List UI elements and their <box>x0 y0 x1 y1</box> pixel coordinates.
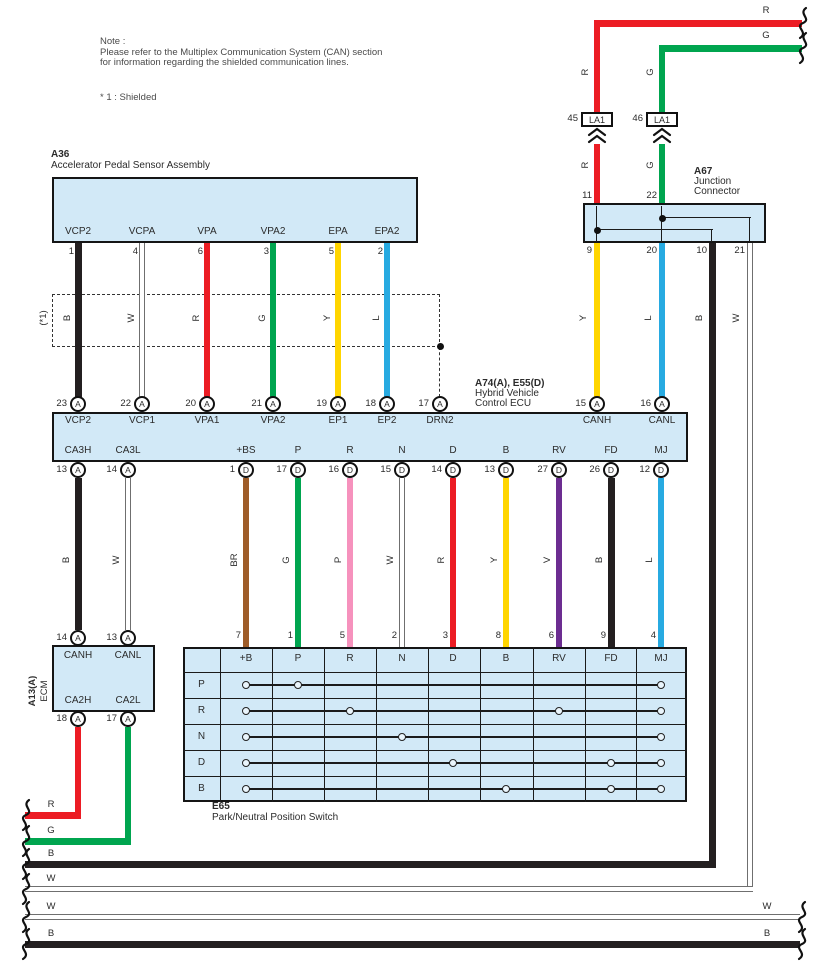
wire-color-label: V <box>542 540 554 580</box>
wire-ecu-RV <box>556 478 563 647</box>
ecm-terminal-CANL: CANL <box>108 650 148 662</box>
wire-bottom-harness-0 <box>25 812 81 819</box>
a36-pin-number: 3 <box>245 246 269 258</box>
e65-row-label: D <box>182 757 222 769</box>
ecu-terminal-CA3L: CA3L <box>105 445 151 457</box>
pin-connector-circle: A <box>265 396 281 412</box>
e65-contact-terminal <box>242 707 250 715</box>
ecm-terminal-CA2H: CA2H <box>58 695 98 707</box>
ecu-top-pin-number: 16 <box>625 398 651 410</box>
ecu-terminal-R: R <box>327 445 373 457</box>
pin-connector-circle: A <box>70 711 86 727</box>
wire-ecm-CA2L <box>125 727 132 844</box>
e65-column-header: +B <box>226 653 266 665</box>
harness-break-mark <box>795 928 809 960</box>
wire-color-label: L <box>643 298 655 338</box>
junction-internal-line <box>711 229 712 242</box>
e65-contact-terminal <box>449 759 457 767</box>
wire-color-label: G <box>645 52 657 92</box>
bottom-edge-wire-label: W <box>31 873 71 885</box>
a36-terminal-VCP2: VCP2 <box>58 226 98 238</box>
wire-bottom-harness-4 <box>25 914 800 920</box>
wire-color-label: G <box>281 540 293 580</box>
wire-color-label: B <box>61 540 73 580</box>
e65-column-header: D <box>433 653 473 665</box>
junction-internal-line <box>183 776 687 777</box>
ecu-bottom-pin-number: 13 <box>41 464 67 476</box>
ecu-terminal-CANL: CANL <box>639 415 685 427</box>
wire-top-edge-g <box>659 45 802 52</box>
ecu-terminal-D: D <box>430 445 476 457</box>
e65-contact-terminal <box>242 681 250 689</box>
a67-name-line2: Connector <box>694 186 740 198</box>
wire-ecu-P <box>295 478 302 647</box>
ecu-bottom-pin-number: 17 <box>261 464 287 476</box>
ecu-bottom-pin-number: 27 <box>522 464 548 476</box>
wire-a36-EPA <box>335 243 342 397</box>
pin-connector-circle: D <box>445 462 461 478</box>
e65-row-label: B <box>182 783 222 795</box>
ecu-terminal-EP1: EP1 <box>315 415 361 427</box>
pin-connector-circle: A <box>589 396 605 412</box>
bottom-edge-wire-label: W <box>31 901 71 913</box>
junction-internal-line <box>183 724 687 725</box>
note-title: Note : <box>100 37 382 48</box>
pin-connector-circle: A <box>379 396 395 412</box>
e65-name: Park/Neutral Position Switch <box>212 812 338 824</box>
ecu-terminal-CANH: CANH <box>574 415 620 427</box>
harness-break-mark <box>19 928 33 960</box>
top-edge-wire-label-r: R <box>751 5 781 17</box>
wire-ecu-CA3H <box>75 478 82 630</box>
top-edge-wire-label-g: G <box>751 30 781 42</box>
a36-terminal-VPA: VPA <box>187 226 227 238</box>
wire-ecu-D <box>450 478 457 647</box>
pin-connector-circle: D <box>238 462 254 478</box>
bottom-right-edge-wire-label: W <box>747 901 787 913</box>
la1-connector-left: LA1 <box>581 112 613 127</box>
e65-row-label: R <box>182 705 222 717</box>
wire-a67-top-22 <box>659 48 666 113</box>
e65-contact-terminal <box>607 785 615 793</box>
wire-color-label: G <box>645 145 657 185</box>
a36-box <box>52 177 418 243</box>
e65-contact-terminal <box>657 785 665 793</box>
wire-ecu-R <box>347 478 354 647</box>
ecm-code: A13(A) <box>27 669 39 713</box>
in-harness-chevron-icon <box>588 128 606 143</box>
shield-tag: (*1) <box>38 298 50 338</box>
note-line2: for information regarding the shielded c… <box>100 58 382 69</box>
wire-ecu-MJ <box>658 478 665 647</box>
a36-pin-number: 5 <box>310 246 334 258</box>
e65-pin-number: 7 <box>219 630 241 642</box>
ecu-terminal-DRN2: DRN2 <box>417 415 463 427</box>
junction-internal-line <box>183 750 687 751</box>
wire-a36-VCP2 <box>75 243 82 397</box>
junction-internal-line <box>596 229 713 230</box>
e65-pin-number: 6 <box>532 630 554 642</box>
e65-pin-number: 4 <box>634 630 656 642</box>
bottom-edge-wire-label: R <box>31 799 71 811</box>
wire-color-label: Y <box>489 540 501 580</box>
e65-contact-terminal <box>555 707 563 715</box>
e65-row-label: P <box>182 679 222 691</box>
ecu-terminal-CA3H: CA3H <box>55 445 101 457</box>
wire-color-label: BR <box>229 540 241 580</box>
pin-connector-circle: A <box>120 711 136 727</box>
e65-contact-line <box>246 736 661 737</box>
pin-connector-circle: A <box>120 630 136 646</box>
wire-ecm-CA2H <box>75 727 82 818</box>
pin-connector-circle: A <box>70 462 86 478</box>
harness-break-mark <box>796 32 810 64</box>
ecu-bottom-pin-number: 13 <box>469 464 495 476</box>
ecu-top-pin-number: 23 <box>41 398 67 410</box>
junction-internal-line <box>749 217 750 242</box>
e65-contact-terminal <box>657 707 665 715</box>
a67-bottom-pin-number: 9 <box>568 245 592 257</box>
e65-column-header: RV <box>539 653 579 665</box>
a36-name: Accelerator Pedal Sensor Assembly <box>51 160 210 172</box>
ecu-terminal-VCP2: VCP2 <box>55 415 101 427</box>
wire-ecu-B <box>503 478 510 647</box>
pin-connector-circle: A <box>120 462 136 478</box>
wire-color-label: R <box>580 145 592 185</box>
e65-pin-number: 3 <box>426 630 448 642</box>
ecu-terminal-EP2: EP2 <box>364 415 410 427</box>
junction-internal-line <box>596 206 597 242</box>
ecu-top-pin-number: 17 <box>403 398 429 410</box>
pin-connector-circle: A <box>134 396 150 412</box>
ecm-top-pin-number: 13 <box>93 632 117 644</box>
junction-dot <box>594 227 601 234</box>
wire-color-label: L <box>644 540 656 580</box>
a36-terminal-VPA2: VPA2 <box>253 226 293 238</box>
wire-color-label: B <box>594 540 606 580</box>
ecm-name: ECM <box>39 676 51 706</box>
wire-bottom-harness-2 <box>25 861 715 868</box>
pin-connector-circle: A <box>70 396 86 412</box>
ecu-top-pin-number: 22 <box>105 398 131 410</box>
wire-top-edge-r <box>594 20 802 27</box>
ecu-terminal-+BS: +BS <box>223 445 269 457</box>
ecu-bottom-pin-number: 14 <box>416 464 442 476</box>
a67-bottom-pin-number: 20 <box>633 245 657 257</box>
junction-internal-line <box>661 217 751 218</box>
ecu-bottom-pin-number: 26 <box>574 464 600 476</box>
in-harness-chevron-icon <box>653 128 671 143</box>
wire-bottom-harness-3 <box>25 886 753 892</box>
e65-contact-line <box>246 788 661 789</box>
ecu-terminal-B: B <box>483 445 529 457</box>
ecu-top-pin-number: 19 <box>301 398 327 410</box>
bottom-edge-wire-label: B <box>31 928 71 940</box>
a36-terminal-EPA: EPA <box>318 226 358 238</box>
ecu-terminal-VPA2: VPA2 <box>250 415 296 427</box>
bottom-edge-wire-label: B <box>31 848 71 860</box>
wire-a67-ground <box>709 243 716 868</box>
e65-pin-number: 9 <box>584 630 606 642</box>
wire-color-label: W <box>731 298 743 338</box>
e65-pin-number: 2 <box>375 630 397 642</box>
e65-contact-terminal <box>346 707 354 715</box>
wire-a36-VCPA <box>139 243 145 397</box>
la1-right-pin: 46 <box>617 113 643 125</box>
wire-color-label: P <box>333 540 345 580</box>
e65-pin-number: 5 <box>323 630 345 642</box>
e65-column-header: MJ <box>641 653 681 665</box>
e65-contact-terminal <box>242 759 250 767</box>
pin-connector-circle: A <box>432 396 448 412</box>
a36-pin-number: 2 <box>359 246 383 258</box>
junction-dot <box>437 343 444 350</box>
ecu-terminal-RV: RV <box>536 445 582 457</box>
wire-bottom-harness-1 <box>25 838 131 845</box>
e65-contact-line <box>246 684 661 685</box>
e65-row-label: N <box>182 731 222 743</box>
shield-drain-dashed-line <box>439 347 440 397</box>
e65-contact-terminal <box>294 681 302 689</box>
ecu-bottom-pin-number: 16 <box>313 464 339 476</box>
pin-connector-circle: D <box>653 462 669 478</box>
a67-top-pin-number: 22 <box>633 190 657 202</box>
a36-pin-number: 4 <box>114 246 138 258</box>
wire-color-label: R <box>436 540 448 580</box>
ecm-bottom-pin-number: 18 <box>43 713 67 725</box>
pin-connector-circle: A <box>199 396 215 412</box>
e65-column-header: R <box>330 653 370 665</box>
wire-a67-top-22 <box>659 144 666 203</box>
ecu-top-pin-number: 18 <box>350 398 376 410</box>
wire-a67-canh <box>594 243 601 397</box>
pin-connector-circle: D <box>394 462 410 478</box>
wire-ecu-+BS <box>243 478 250 647</box>
wire-ecu-FD <box>608 478 615 647</box>
ecu-terminal-MJ: MJ <box>638 445 684 457</box>
e65-column-header: B <box>486 653 526 665</box>
ecu-top-pin-number: 15 <box>560 398 586 410</box>
ecm-top-pin-number: 14 <box>43 632 67 644</box>
junction-internal-line <box>183 672 687 673</box>
wire-color-label: R <box>580 52 592 92</box>
e65-column-header: FD <box>591 653 631 665</box>
e65-column-header: P <box>278 653 318 665</box>
wire-a36-VPA <box>204 243 211 397</box>
ecm-terminal-CANH: CANH <box>58 650 98 662</box>
a67-bottom-pin-number: 10 <box>683 245 707 257</box>
e65-contact-terminal <box>657 759 665 767</box>
ecu-terminal-VCP1: VCP1 <box>119 415 165 427</box>
pin-connector-circle: D <box>342 462 358 478</box>
note-block: Note : Please refer to the Multiplex Com… <box>100 37 382 69</box>
ecu-bottom-pin-number: 14 <box>91 464 117 476</box>
wire-color-label: W <box>385 540 397 580</box>
a36-terminal-EPA2: EPA2 <box>367 226 407 238</box>
pin-connector-circle: D <box>290 462 306 478</box>
ecu-terminal-FD: FD <box>588 445 634 457</box>
e65-contact-terminal <box>607 759 615 767</box>
la1-connector-right: LA1 <box>646 112 678 127</box>
a67-bottom-pin-number: 21 <box>721 245 745 257</box>
ecu-bottom-pin-number: 1 <box>209 464 235 476</box>
wire-color-label: B <box>62 298 74 338</box>
ecu-top-pin-number: 21 <box>236 398 262 410</box>
junction-internal-line <box>661 206 662 242</box>
wire-ecu-CA3L <box>125 478 131 630</box>
e65-pin-number: 8 <box>479 630 501 642</box>
wire-color-label: R <box>191 298 203 338</box>
wire-color-label: B <box>694 298 706 338</box>
e65-pin-number: 1 <box>271 630 293 642</box>
ecu-bottom-pin-number: 15 <box>365 464 391 476</box>
e65-contact-line <box>246 710 661 711</box>
wire-a67-w <box>747 243 753 892</box>
wire-a36-VPA2 <box>270 243 277 397</box>
a67-junction-box <box>583 203 766 243</box>
wire-a67-top-11 <box>594 144 601 203</box>
wire-a67-top-11 <box>594 20 601 113</box>
wire-a36-EPA2 <box>384 243 391 397</box>
e65-contact-terminal <box>502 785 510 793</box>
wire-ecu-N <box>399 478 405 647</box>
a36-terminal-VCPA: VCPA <box>122 226 162 238</box>
a67-top-pin-number: 11 <box>568 190 592 202</box>
ecu-terminal-N: N <box>379 445 425 457</box>
ecu-terminal-VPA1: VPA1 <box>184 415 230 427</box>
pin-connector-circle: A <box>330 396 346 412</box>
wire-color-label: W <box>126 298 138 338</box>
wire-color-label: Y <box>322 298 334 338</box>
bottom-right-edge-wire-label: B <box>747 928 787 940</box>
bottom-edge-wire-label: G <box>31 825 71 837</box>
e65-contact-terminal <box>398 733 406 741</box>
wiring-diagram-canvas: Note : Please refer to the Multiplex Com… <box>0 0 817 966</box>
a36-pin-number: 6 <box>179 246 203 258</box>
e65-contact-terminal <box>242 785 250 793</box>
pin-connector-circle: D <box>498 462 514 478</box>
ecu-name-line2: Control ECU <box>475 398 531 410</box>
junction-dot <box>659 215 666 222</box>
junction-internal-line <box>183 698 687 699</box>
e65-contact-terminal <box>657 733 665 741</box>
e65-contact-terminal <box>242 733 250 741</box>
la1-left-pin: 45 <box>552 113 578 125</box>
a36-pin-number: 1 <box>50 246 74 258</box>
wire-color-label: W <box>111 540 123 580</box>
wire-bottom-harness-5 <box>25 941 800 948</box>
ecm-bottom-pin-number: 17 <box>93 713 117 725</box>
ecu-top-pin-number: 20 <box>170 398 196 410</box>
wire-color-label: L <box>371 298 383 338</box>
e65-column-header: N <box>382 653 422 665</box>
pin-connector-circle: A <box>70 630 86 646</box>
wire-a67-canl <box>659 243 666 397</box>
pin-connector-circle: A <box>654 396 670 412</box>
pin-connector-circle: D <box>551 462 567 478</box>
pin-connector-circle: D <box>603 462 619 478</box>
wire-color-label: G <box>257 298 269 338</box>
e65-contact-terminal <box>657 681 665 689</box>
ecu-terminal-P: P <box>275 445 321 457</box>
ecu-bottom-pin-number: 12 <box>624 464 650 476</box>
wire-color-label: Y <box>578 298 590 338</box>
shield-note: * 1 : Shielded <box>100 93 157 104</box>
ecm-terminal-CA2L: CA2L <box>108 695 148 707</box>
